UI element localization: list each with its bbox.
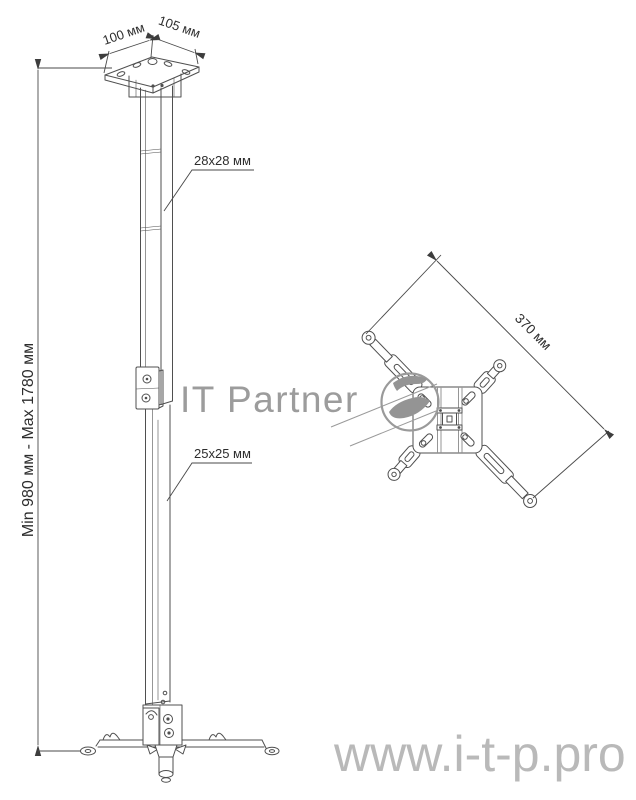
ceiling-plate <box>105 57 199 93</box>
watermark-url-text: www.i-t-p.pro <box>333 726 626 782</box>
outer-tube-label: 28x28 мм <box>194 153 251 168</box>
inner-tube-label: 25x25 мм <box>194 446 251 461</box>
projector-bracket-side <box>81 705 280 782</box>
watermark-brand-text: IT Partner <box>180 379 359 420</box>
height-dimension: Min 980 мм - Max 1780 мм <box>20 68 112 751</box>
outer-tube-dimension: 28x28 мм <box>164 153 254 211</box>
technical-drawing-page: IT Partner www.i-t-p.pro Min 980 мм - Ma… <box>0 0 636 800</box>
bracket-arm-upper-left <box>359 328 424 394</box>
projector-mount-diagram: IT Partner www.i-t-p.pro Min 980 мм - Ma… <box>0 0 636 800</box>
bracket-span-label: 370 мм <box>512 311 554 353</box>
bracket-arm-lower-right <box>474 444 539 511</box>
outer-tube <box>141 86 173 407</box>
inner-tube <box>146 405 171 705</box>
joint-clamp <box>136 367 163 409</box>
inner-tube-dimension: 25x25 мм <box>167 446 252 501</box>
plate-width-label: 105 мм <box>157 13 203 41</box>
height-range-label: Min 980 мм - Max 1780 мм <box>20 343 37 537</box>
